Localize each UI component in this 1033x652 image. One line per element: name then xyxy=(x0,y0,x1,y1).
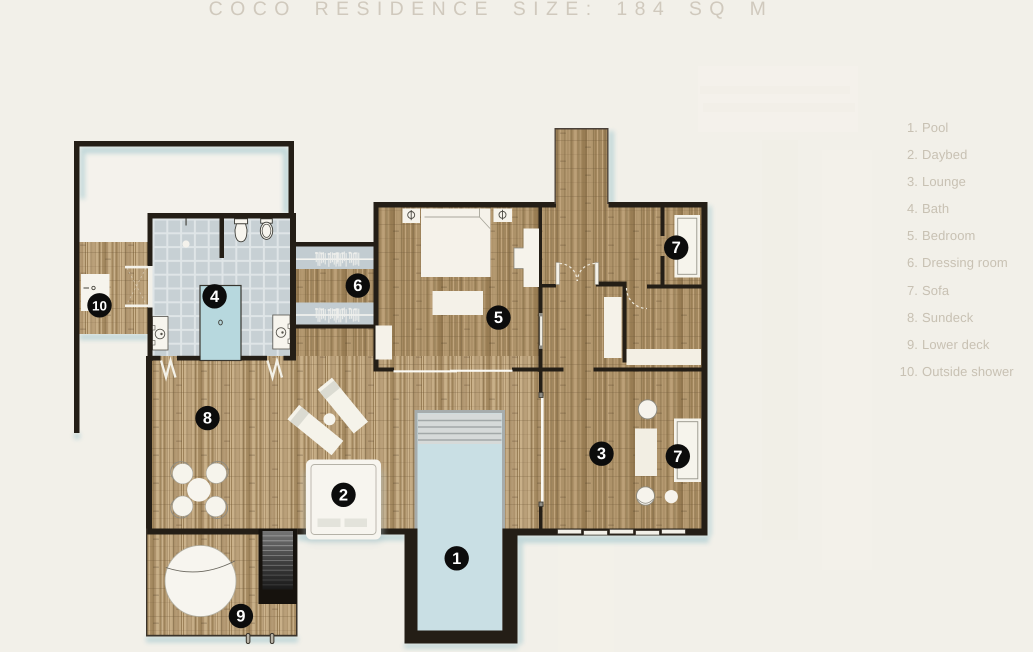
svg-text:4: 4 xyxy=(210,288,220,306)
svg-text:8: 8 xyxy=(203,410,212,428)
svg-text:7: 7 xyxy=(673,448,682,466)
svg-text:6: 6 xyxy=(353,277,362,295)
svg-text:1: 1 xyxy=(452,550,461,568)
svg-text:3: 3 xyxy=(597,445,606,463)
svg-text:2: 2 xyxy=(339,486,348,504)
svg-text:9: 9 xyxy=(236,608,245,626)
svg-text:7: 7 xyxy=(672,239,681,257)
svg-text:5: 5 xyxy=(494,309,503,327)
svg-text:10: 10 xyxy=(92,298,107,313)
